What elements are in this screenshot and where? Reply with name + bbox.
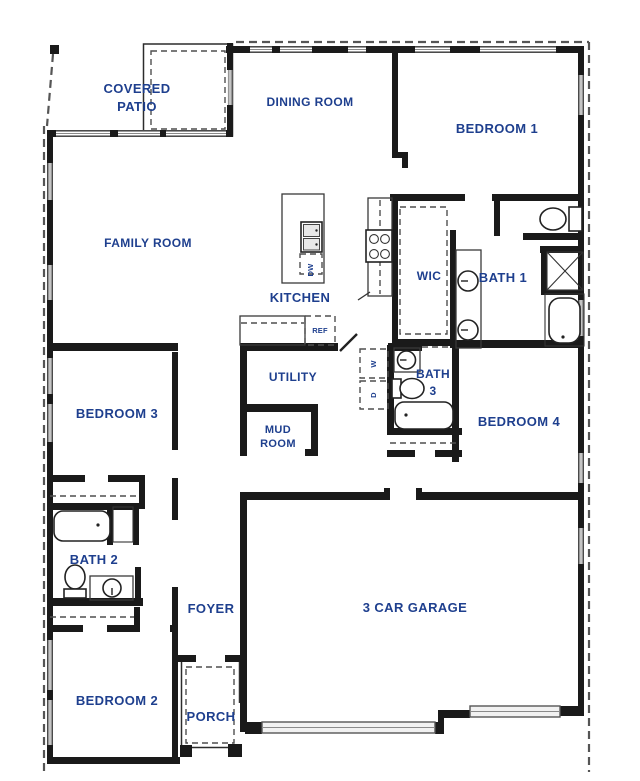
covered-patio-label-2: PATIO [117, 99, 157, 114]
bedroom2-label: BEDROOM 2 [76, 693, 158, 708]
covered-patio-label-1: COVERED [103, 81, 170, 96]
kitchen-label: KITCHEN [270, 290, 331, 305]
bath3-toilet [392, 379, 424, 399]
bath1-vanity [456, 250, 481, 348]
washer-label: W [369, 360, 378, 368]
garage-label: 3 CAR GARAGE [363, 600, 467, 615]
floor-plan: DW REF W D [0, 0, 640, 781]
bath1-tub [545, 294, 584, 346]
walls [47, 43, 584, 764]
room-labels: COVERED PATIO DINING ROOM BEDROOM 1 FAMI… [70, 81, 561, 724]
family-room-label: FAMILY ROOM [104, 236, 192, 250]
cooktop [366, 230, 392, 262]
bath3-label-1: BATH [416, 367, 450, 381]
kitchen-island: DW [282, 194, 324, 283]
bath1-shower [547, 252, 583, 290]
mud-room-label-2: ROOM [260, 438, 296, 450]
porch-label: PORCH [187, 709, 236, 724]
washer: W [360, 349, 388, 378]
bath3-fixtures [392, 348, 453, 429]
refrigerator-label: REF [312, 326, 328, 335]
dining-room-label: DINING ROOM [266, 95, 353, 109]
bath2-tub [54, 511, 110, 541]
mud-room-label-1: MUD [265, 424, 291, 436]
bedroom4-label: BEDROOM 4 [478, 414, 561, 429]
dishwasher: DW [300, 254, 322, 276]
refrigerator: REF [305, 316, 335, 345]
bedroom1-label: BEDROOM 1 [456, 121, 538, 136]
wic-label: WIC [417, 269, 442, 283]
bath3-label-2: 3 [429, 384, 436, 398]
utility-label: UTILITY [269, 370, 317, 384]
garage-doors [262, 706, 560, 733]
dishwasher-label: DW [306, 263, 315, 277]
bedroom3-label: BEDROOM 3 [76, 406, 158, 421]
floor-plan-drawing: DW REF W D [0, 0, 640, 781]
kitchen-sink [301, 222, 322, 252]
kitchen-counter-bottom: REF [240, 316, 335, 345]
bath2-vanity [90, 576, 133, 600]
bath2-toilet [64, 565, 86, 598]
bath1-toilet [540, 207, 582, 231]
windows [48, 47, 583, 745]
bath2-label: BATH 2 [70, 552, 118, 567]
foyer-label: FOYER [188, 601, 235, 616]
bath3-tub [395, 402, 453, 429]
dryer-label: D [369, 392, 378, 398]
bath2-linen [113, 507, 133, 542]
dryer: D [360, 381, 388, 409]
kitchen-counter-right [358, 198, 392, 300]
bath1-label: BATH 1 [479, 270, 527, 285]
